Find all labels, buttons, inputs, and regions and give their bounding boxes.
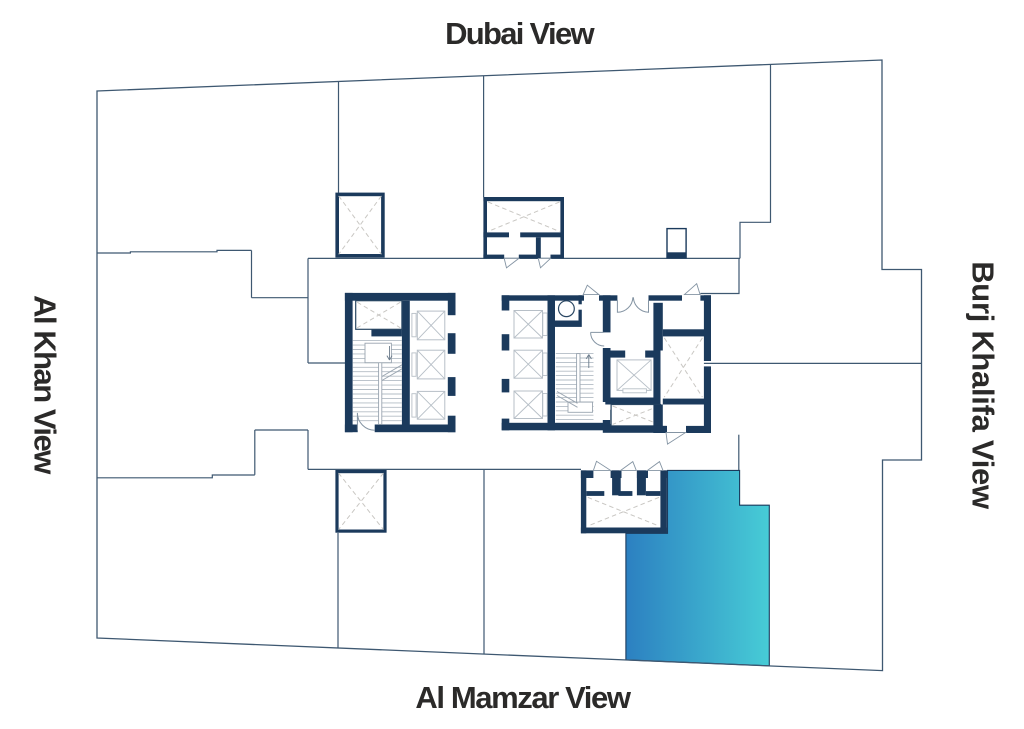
svg-text:Burj Khalifa View: Burj Khalifa View bbox=[966, 261, 1001, 510]
svg-text:Al Khan View: Al Khan View bbox=[28, 295, 63, 475]
svg-text:Dubai View: Dubai View bbox=[445, 16, 595, 51]
svg-text:Al Mamzar View: Al Mamzar View bbox=[415, 680, 631, 715]
